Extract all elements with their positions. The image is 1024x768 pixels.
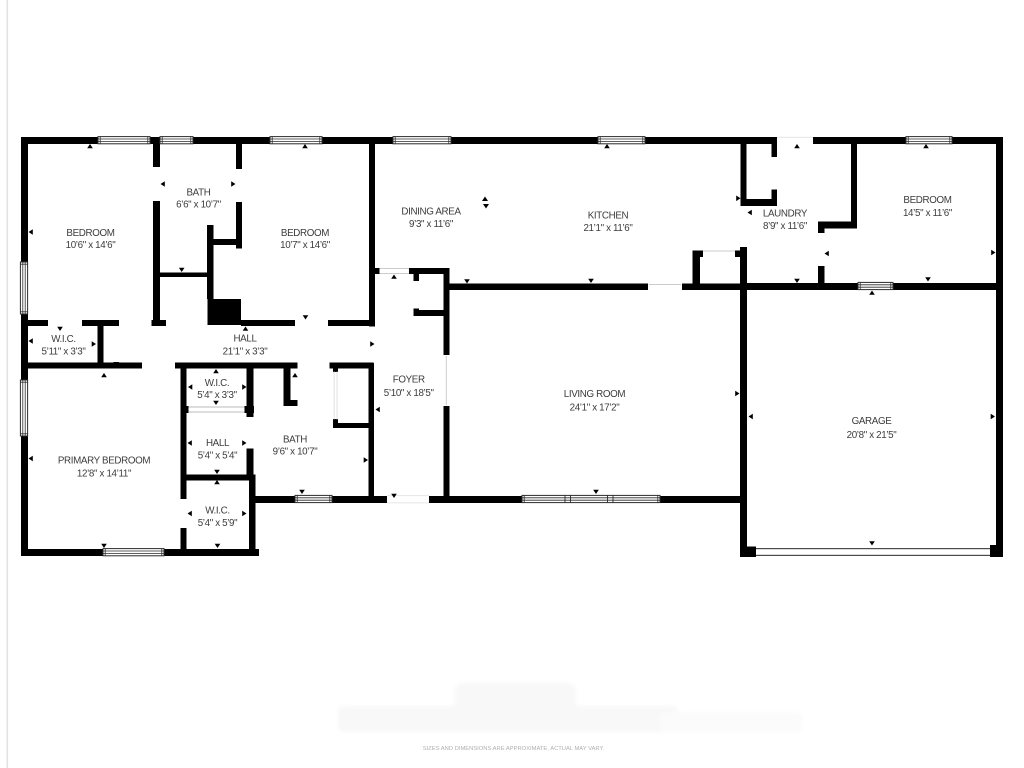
svg-text:5’11" x 3’3": 5’11" x 3’3" (42, 347, 87, 358)
svg-text:SIZES AND DIMENSIONS ARE APPRO: SIZES AND DIMENSIONS ARE APPROXIMATE, AC… (423, 746, 605, 752)
svg-text:14’5" x 11’6": 14’5" x 11’6" (903, 208, 953, 219)
svg-text:21’1" x 3’3": 21’1" x 3’3" (223, 347, 269, 358)
svg-text:HALL: HALL (206, 438, 230, 449)
svg-text:20’8" x 21’5": 20’8" x 21’5" (847, 430, 898, 441)
svg-text:BEDROOM: BEDROOM (66, 228, 114, 239)
svg-text:5’4" x 5’9": 5’4" x 5’9" (198, 518, 238, 529)
svg-text:9’6" x 10’7": 9’6" x 10’7" (273, 447, 319, 458)
svg-text:W.I.C.: W.I.C. (205, 378, 230, 389)
svg-text:W.I.C.: W.I.C. (205, 506, 230, 517)
svg-text:10’7" x 14’6": 10’7" x 14’6" (280, 240, 331, 251)
svg-text:KITCHEN: KITCHEN (588, 211, 629, 222)
svg-text:DINING AREA: DINING AREA (401, 207, 461, 218)
svg-text:5’4" x 3’3": 5’4" x 3’3" (197, 390, 237, 401)
svg-text:5’10" x 18’5": 5’10" x 18’5" (384, 388, 435, 399)
svg-text:LIVING ROOM: LIVING ROOM (564, 389, 626, 400)
svg-text:FOYER: FOYER (393, 375, 425, 386)
svg-text:BEDROOM: BEDROOM (903, 195, 951, 206)
svg-text:BATH: BATH (186, 188, 210, 199)
svg-text:12’8" x 14’11": 12’8" x 14’11" (77, 468, 132, 479)
svg-text:6’6" x 10’7": 6’6" x 10’7" (176, 200, 222, 211)
svg-text:W.I.C.: W.I.C. (51, 334, 76, 345)
svg-text:BEDROOM: BEDROOM (281, 228, 329, 239)
svg-text:HALL: HALL (233, 334, 257, 345)
svg-text:8’9" x 11’6": 8’9" x 11’6" (763, 221, 808, 232)
svg-text:10’6" x 14’6": 10’6" x 14’6" (66, 240, 117, 251)
svg-text:PRIMARY BEDROOM: PRIMARY BEDROOM (58, 456, 151, 467)
svg-text:BATH: BATH (283, 435, 307, 446)
svg-text:LAUNDRY: LAUNDRY (763, 209, 808, 220)
svg-text:24’1" x 17’2": 24’1" x 17’2" (570, 403, 621, 414)
svg-text:9’3" x 11’6": 9’3" x 11’6" (409, 219, 454, 230)
svg-text:GARAGE: GARAGE (852, 416, 893, 427)
svg-text:21’1" x 11’6": 21’1" x 11’6" (583, 223, 633, 234)
svg-text:5’4" x 5’4": 5’4" x 5’4" (198, 451, 238, 462)
